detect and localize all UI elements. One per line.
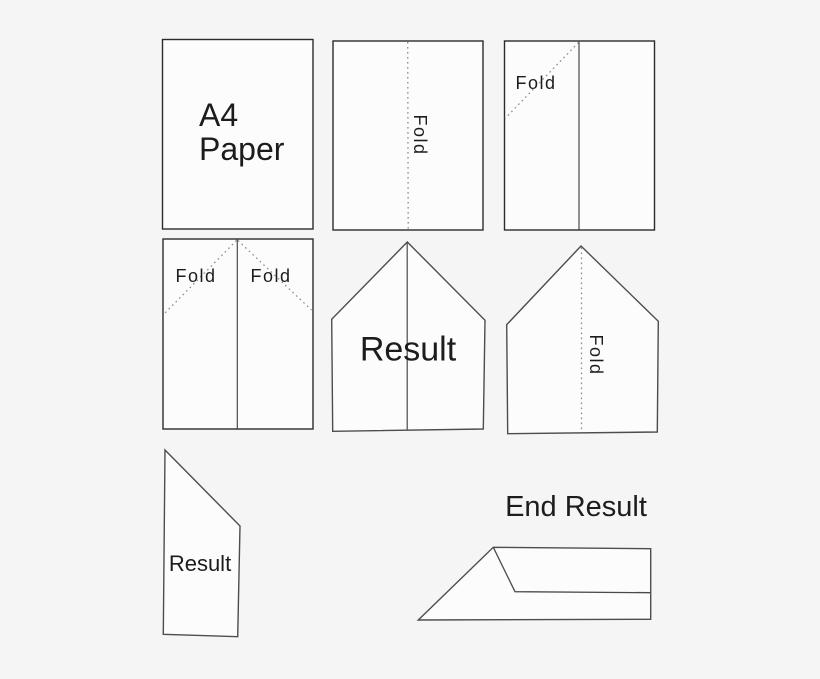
step6-fold-label: Fold — [585, 334, 605, 375]
step2-paper-outline — [333, 41, 483, 230]
step3-fold-label: Fold — [515, 74, 556, 94]
a4-paper-label: A4 Paper — [199, 98, 284, 166]
step2-fold-label: Fold — [409, 114, 429, 155]
step4-fold-label-left: Fold — [175, 267, 216, 287]
folding-instructions-diagram: A4 Paper Fold Fold Fold Fold Result Fold… — [0, 0, 820, 679]
step5-result-label: Result — [360, 331, 456, 368]
end-result-heading: End Result — [505, 492, 647, 524]
step7-result-label: Result — [169, 552, 231, 576]
step4-fold-label-right: Fold — [250, 267, 291, 287]
step6-paper-outline — [507, 246, 659, 434]
step7-result-outline — [163, 450, 240, 637]
final-airplane-outline — [418, 547, 650, 620]
